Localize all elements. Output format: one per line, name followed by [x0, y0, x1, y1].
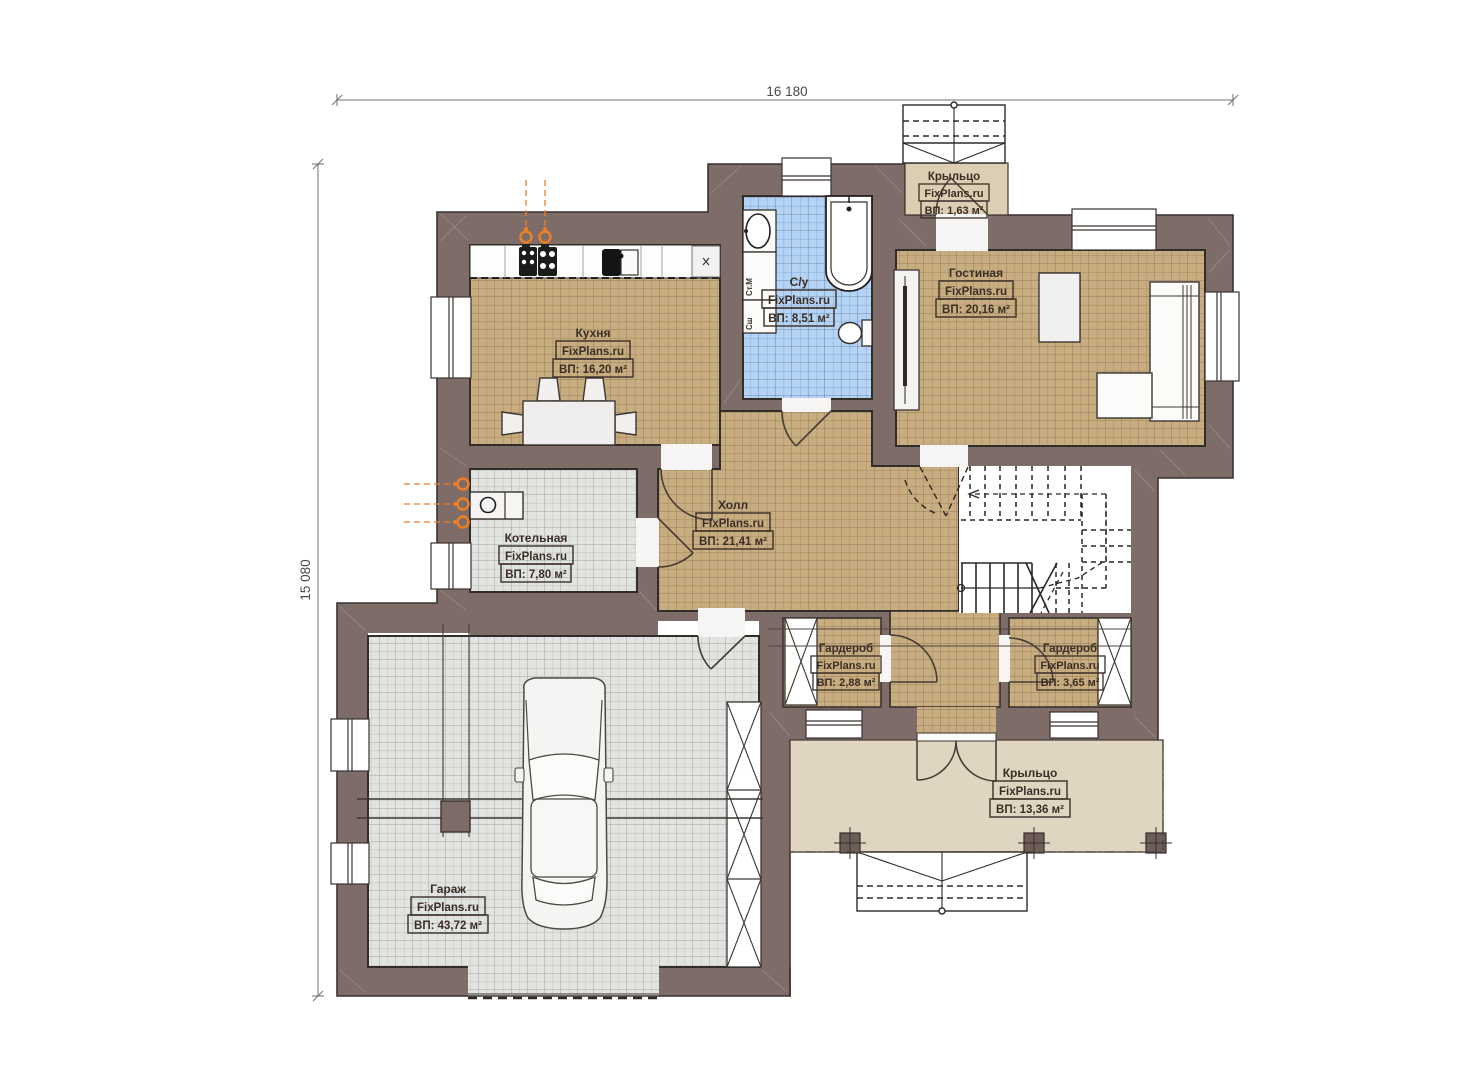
svg-text:Ст.М: Ст.М	[745, 278, 754, 296]
svg-text:ВП: 43,72 м²: ВП: 43,72 м²	[414, 920, 482, 932]
svg-text:Гардероб: Гардероб	[1043, 643, 1097, 655]
svg-text:Крыльцо: Крыльцо	[1003, 766, 1058, 780]
svg-text:Крыльцо: Крыльцо	[928, 171, 980, 183]
svg-text:ВП: 13,36 м²: ВП: 13,36 м²	[996, 804, 1064, 816]
svg-text:FixPlans.ru: FixPlans.ru	[924, 188, 983, 200]
svg-text:Котельная: Котельная	[505, 531, 568, 545]
svg-text:Гардероб: Гардероб	[819, 643, 873, 655]
svg-text:FixPlans.ru: FixPlans.ru	[768, 295, 830, 307]
svg-text:15 080: 15 080	[298, 559, 313, 600]
svg-text:ВП: 20,16 м²: ВП: 20,16 м²	[942, 304, 1010, 316]
svg-text:FixPlans.ru: FixPlans.ru	[417, 902, 479, 914]
svg-text:Гостиная: Гостиная	[949, 266, 1003, 280]
svg-text:Сш: Сш	[745, 317, 754, 330]
svg-text:FixPlans.ru: FixPlans.ru	[816, 660, 875, 672]
svg-text:ВП: 1,63 м²: ВП: 1,63 м²	[925, 205, 984, 217]
svg-text:Холл: Холл	[718, 498, 748, 512]
svg-text:ВП: 7,80 м²: ВП: 7,80 м²	[505, 569, 567, 581]
svg-text:ВП: 2,88 м²: ВП: 2,88 м²	[817, 677, 876, 689]
svg-text:Кухня: Кухня	[575, 326, 610, 340]
svg-text:FixPlans.ru: FixPlans.ru	[945, 286, 1007, 298]
svg-text:Гараж: Гараж	[430, 882, 466, 896]
svg-text:FixPlans.ru: FixPlans.ru	[505, 551, 567, 563]
svg-text:FixPlans.ru: FixPlans.ru	[562, 346, 624, 358]
svg-text:ВП: 8,51 м²: ВП: 8,51 м²	[768, 313, 830, 325]
svg-text:ВП: 21,41 м²: ВП: 21,41 м²	[699, 536, 767, 548]
svg-text:16 180: 16 180	[766, 84, 807, 99]
svg-text:FixPlans.ru: FixPlans.ru	[702, 518, 764, 530]
svg-text:С/у: С/у	[790, 275, 809, 289]
svg-text:ВП: 16,20 м²: ВП: 16,20 м²	[559, 364, 627, 376]
svg-text:FixPlans.ru: FixPlans.ru	[999, 786, 1061, 798]
svg-text:FixPlans.ru: FixPlans.ru	[1040, 660, 1099, 672]
svg-text:ВП: 3,65 м²: ВП: 3,65 м²	[1041, 677, 1100, 689]
